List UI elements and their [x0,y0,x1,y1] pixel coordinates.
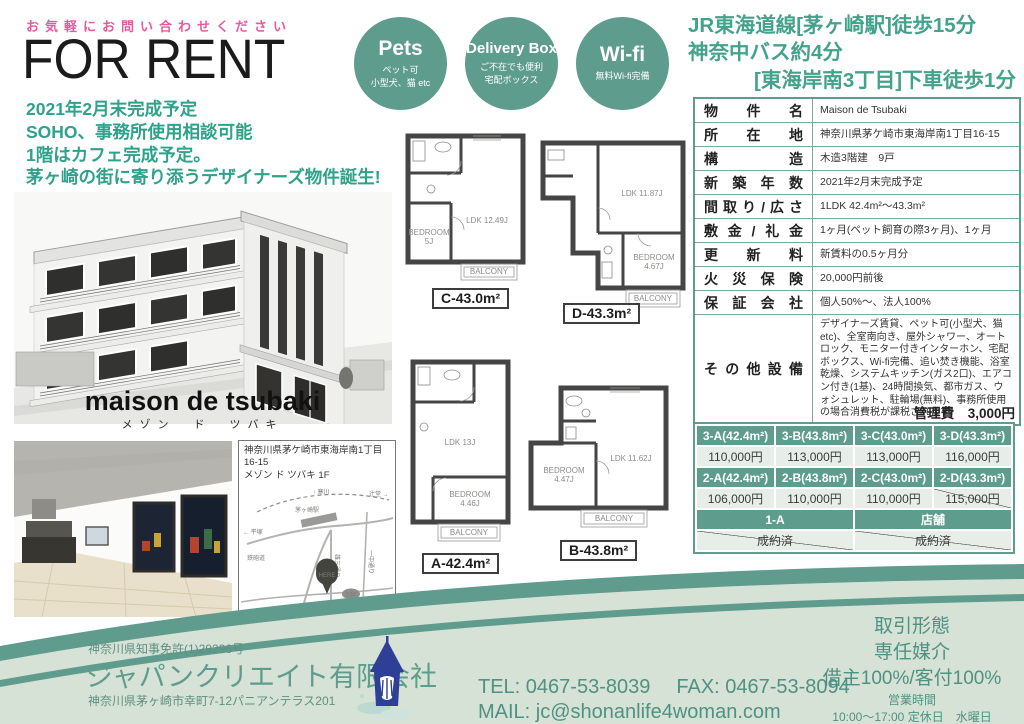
management-fee: 管理費 3,000円 [693,402,1015,422]
svg-text:LDK 12.49J: LDK 12.49J [466,216,508,225]
svg-text:茅ヶ崎駅: 茅ヶ崎駅 [295,506,319,514]
front-wall [16,352,94,386]
svg-text:LDK 11.87J: LDK 11.87J [621,189,662,198]
building-name-kana: メゾン ド ツバキ [30,416,375,432]
rental-flyer: お気軽にお問い合わせください FOR RENT 2021年2月末完成予定 SOH… [0,0,1024,724]
svg-text:LDK 13J: LDK 13J [445,438,476,447]
property-label: 新築年数 [695,171,813,194]
floorplan-d: LDK 11.87J BEDROOM 4.67J BALCONY [538,138,688,320]
price-header-cell: 3-C(43.0m²) [855,426,932,445]
property-label: 更新料 [695,243,813,266]
svg-text:← 平塚: ← 平塚 [243,528,263,536]
property-row: 間取り/広さ1LDK 42.4m²〜43.3m² [695,194,1019,218]
tel-number: TEL: 0467-53-8039 [478,676,650,699]
price-value-cell: 成約済 [697,531,853,550]
price-header-cell: 2-A(42.4m²) [697,468,774,487]
floorplan-a: LDK 13J BEDROOM 4.46J BALCONY [408,357,514,550]
badge-pets-title: Pets [378,38,422,59]
access-info: JR東海道線[茅ヶ崎駅]徒歩15分 神奈中バス約4分 [東海岸南3丁目]下車徒歩… [688,12,1022,94]
price-header-cell: 1-A [697,510,853,529]
svg-text:BALCONY: BALCONY [450,528,489,537]
property-row: 構造木造3階建 9戸 [695,146,1019,170]
hours: 10:00〜17:00 定休日 水曜日 [806,710,1018,724]
svg-text:BALCONY: BALCONY [634,294,673,303]
property-label: 物件名 [695,99,813,122]
price-header-cell: 店舗 [855,510,1011,529]
property-value: 個人50%〜、法人100% [813,291,1019,314]
svg-text:BALCONY: BALCONY [595,514,634,523]
badge-wifi-sub: 無料Wi-fi完備 [596,70,650,82]
price-header-cell: 2-D(43.3m²) [934,468,1011,487]
svg-text:BEDROOM: BEDROOM [543,466,585,475]
map-address: 神奈川県茅ケ崎市東海岸南1丁目16-15 メゾン ド ツバキ 1F [239,441,395,482]
property-label: 保証会社 [695,291,813,314]
price-value-cell: 115,000円 [934,489,1011,508]
property-table: 物件名Maison de Tsubaki所在地神奈川県茅ケ崎市東海岸南1丁目16… [693,97,1021,426]
price-value-cell: 113,000円 [776,447,853,466]
deal-info: 取引形態 専任媒介 借主100%/客付100% 営業時間 10:00〜17:00… [806,616,1018,724]
lighthouse-logo [356,636,418,720]
property-value: Maison de Tsubaki [813,99,1019,122]
highlight-line: SOHO、事務所使用相談可能 [26,121,381,144]
access-line: [東海岸南3丁目]下車徒歩1分 [688,67,1022,94]
svg-text:BEDROOM: BEDROOM [633,253,675,262]
range-hood [32,499,56,519]
property-label: 敷金/礼金 [695,219,813,242]
badge-delivery-title: Delivery Box [466,41,557,56]
svg-text:↑ 寒川: ↑ 寒川 [313,488,330,496]
price-header-cell: 3-B(43.8m²) [776,426,853,445]
svg-text:BEDROOM: BEDROOM [408,228,450,237]
property-label: 構造 [695,147,813,170]
svg-text:BALCONY: BALCONY [470,267,509,276]
badge-pets: Pets ペット可小型犬、猫 etc [354,17,447,110]
property-row: 新築年数2021年2月末完成予定 [695,170,1019,194]
highlight-line: 1階はカフェ完成予定。 [26,144,381,167]
building-name: maison de tsubaki [30,386,375,417]
property-row: 物件名Maison de Tsubaki [695,99,1019,122]
property-label: 所在地 [695,123,813,146]
page-title: FOR RENT [22,26,285,91]
property-value: 1LDK 42.4m²〜43.3m² [813,195,1019,218]
property-value: 20,000円前後 [813,267,1019,290]
deal-type: 専任媒介 [806,642,1018,665]
price-value-cell: 成約済 [855,531,1011,550]
price-value-cell: 110,000円 [697,447,774,466]
svg-text:LDK 11.62J: LDK 11.62J [610,454,651,463]
badge-delivery-box: Delivery Box ご不在でも便利宅配ボックス [465,17,558,110]
svg-text:4.67J: 4.67J [644,262,664,271]
agency-address: 神奈川県茅ヶ崎市幸町7-12パニアンテラス201 [88,692,335,709]
deal-type-label: 取引形態 [806,616,1018,639]
highlight-line: 茅ヶ崎の街に寄り添うデザイナーズ物件誕生! [26,166,381,189]
contact-phone: TEL: 0467-53-8039 FAX: 0467-53-8094 [478,676,850,699]
highlight-line: 2021年2月末完成予定 [26,98,381,121]
price-value-cell: 106,000円 [697,489,774,508]
svg-text:4.47J: 4.47J [554,475,574,484]
property-label: 間取り/広さ [695,195,813,218]
price-value-cell: 116,000円 [934,447,1011,466]
access-line: 神奈中バス約4分 [688,39,1022,66]
hours-label: 営業時間 [806,693,1018,707]
price-value-cell: 110,000円 [855,489,932,508]
floorplan-b: LDK 11.62J BEDROOM 4.47J BALCONY [526,383,671,535]
floorplan-c: LDK 12.49J BEDROOM 5J BALCONY [403,131,529,283]
price-table: 3-A(42.4m²)3-B(43.8m²)3-C(43.0m²)3-D(43.… [693,422,1015,554]
property-value: 新賃料の0.5ヶ月分 [813,243,1019,266]
price-header-cell: 3-A(42.4m²) [697,426,774,445]
property-row: 敷金/礼金1ヶ月(ペット飼育の際3ヶ月)、1ヶ月 [695,218,1019,242]
property-value: 木造3階建 9戸 [813,147,1019,170]
property-value: 1ヶ月(ペット飼育の際3ヶ月)、1ヶ月 [813,219,1019,242]
badge-delivery-sub: ご不在でも便利宅配ボックス [480,61,543,85]
commission: 借主100%/客付100% [806,668,1018,691]
property-value: 神奈川県茅ケ崎市東海岸南1丁目16-15 [813,123,1019,146]
access-line: JR東海道線[茅ヶ崎駅]徒歩15分 [688,12,1022,39]
floorplan-c-caption: C-43.0m² [432,288,509,309]
contact-mail: MAIL: jc@shonanlife4woman.com [478,701,781,724]
property-label: 火災保険 [695,267,813,290]
svg-text:4.46J: 4.46J [460,499,480,508]
badge-pets-sub: ペット可小型犬、猫 etc [371,64,431,88]
floorplan-d-caption: D-43.3m² [563,303,640,324]
property-value: 2021年2月末完成予定 [813,171,1019,194]
property-row: 保証会社個人50%〜、法人100% [695,290,1019,314]
price-value-cell: 110,000円 [776,489,853,508]
property-row: 火災保険20,000円前後 [695,266,1019,290]
price-header-cell: 2-C(43.0m²) [855,468,932,487]
property-row: 更新料新賃料の0.5ヶ月分 [695,242,1019,266]
highlight-copy: 2021年2月末完成予定 SOHO、事務所使用相談可能 1階はカフェ完成予定。 … [26,98,381,189]
svg-text:5J: 5J [425,237,433,246]
badge-wifi-title: Wi-fi [600,44,645,65]
price-value-cell: 113,000円 [855,447,932,466]
badge-wifi: Wi-fi 無料Wi-fi完備 [576,17,669,110]
svg-text:BEDROOM: BEDROOM [449,490,491,499]
price-header-cell: 3-D(43.3m²) [934,426,1011,445]
price-header-cell: 2-B(43.8m²) [776,468,853,487]
property-row: 所在地神奈川県茅ケ崎市東海岸南1丁目16-15 [695,122,1019,146]
svg-text:辻堂 →: 辻堂 → [369,490,389,498]
